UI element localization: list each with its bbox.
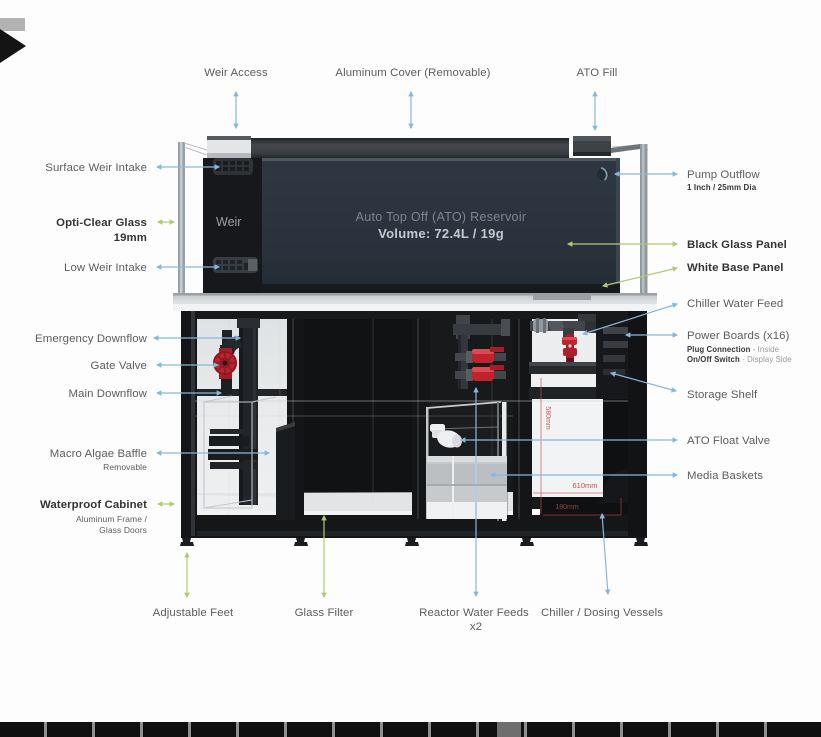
svg-text:x2: x2 bbox=[470, 621, 482, 633]
svg-text:Surface Weir Intake: Surface Weir Intake bbox=[45, 162, 147, 174]
svg-text:Weir: Weir bbox=[216, 215, 241, 229]
svg-text:180mm: 180mm bbox=[555, 504, 579, 511]
svg-text:Power Boards (x16): Power Boards (x16) bbox=[687, 330, 790, 342]
svg-text:610mm: 610mm bbox=[572, 481, 597, 490]
svg-text:ATO Float Valve: ATO Float Valve bbox=[687, 435, 770, 447]
svg-text:Auto Top Off (ATO) Reservoir: Auto Top Off (ATO) Reservoir bbox=[356, 210, 527, 224]
svg-text:Low Weir Intake: Low Weir Intake bbox=[64, 262, 147, 274]
svg-text:Adjustable Feet: Adjustable Feet bbox=[153, 607, 234, 619]
svg-text:Volume: 72.4L / 19g: Volume: 72.4L / 19g bbox=[378, 226, 504, 241]
svg-text:580mm: 580mm bbox=[544, 406, 551, 430]
svg-text:Glass Doors: Glass Doors bbox=[99, 525, 147, 535]
svg-text:Storage Shelf: Storage Shelf bbox=[687, 389, 758, 401]
svg-text:19mm: 19mm bbox=[114, 232, 147, 244]
svg-text:Weir Access: Weir Access bbox=[204, 67, 268, 79]
svg-text:Media Baskets: Media Baskets bbox=[687, 470, 763, 482]
svg-text:Waterproof Cabinet: Waterproof Cabinet bbox=[40, 499, 147, 511]
svg-text:Black Glass Panel: Black Glass Panel bbox=[687, 239, 787, 251]
svg-text:Macro Algae Baffle: Macro Algae Baffle bbox=[50, 448, 147, 460]
svg-text:Aluminum Frame /: Aluminum Frame / bbox=[76, 514, 148, 524]
svg-text:Glass Filter: Glass Filter bbox=[295, 607, 354, 619]
svg-text:Main Downflow: Main Downflow bbox=[68, 388, 147, 400]
svg-text:Pump Outflow: Pump Outflow bbox=[687, 169, 760, 181]
svg-text:Emergency Downflow: Emergency Downflow bbox=[35, 333, 148, 345]
svg-text:Aluminum Cover (Removable): Aluminum Cover (Removable) bbox=[335, 67, 490, 79]
svg-text:White Base Panel: White Base Panel bbox=[687, 262, 784, 274]
svg-text:ATO Fill: ATO Fill bbox=[577, 67, 618, 79]
svg-text:Opti-Clear Glass: Opti-Clear Glass bbox=[56, 217, 147, 229]
svg-text:Chiller / Dosing Vessels: Chiller / Dosing Vessels bbox=[541, 607, 663, 619]
svg-text:Gate Valve: Gate Valve bbox=[90, 360, 147, 372]
svg-text:Plug Connection - Inside: Plug Connection - Inside bbox=[687, 345, 779, 354]
svg-text:Chiller Water Feed: Chiller Water Feed bbox=[687, 298, 783, 310]
svg-text:On/Off Switch - Display Side: On/Off Switch - Display Side bbox=[687, 355, 792, 364]
svg-text:1 Inch / 25mm Dia: 1 Inch / 25mm Dia bbox=[687, 183, 757, 192]
svg-text:Removable: Removable bbox=[103, 462, 147, 472]
svg-text:Reactor Water Feeds: Reactor Water Feeds bbox=[419, 607, 529, 619]
